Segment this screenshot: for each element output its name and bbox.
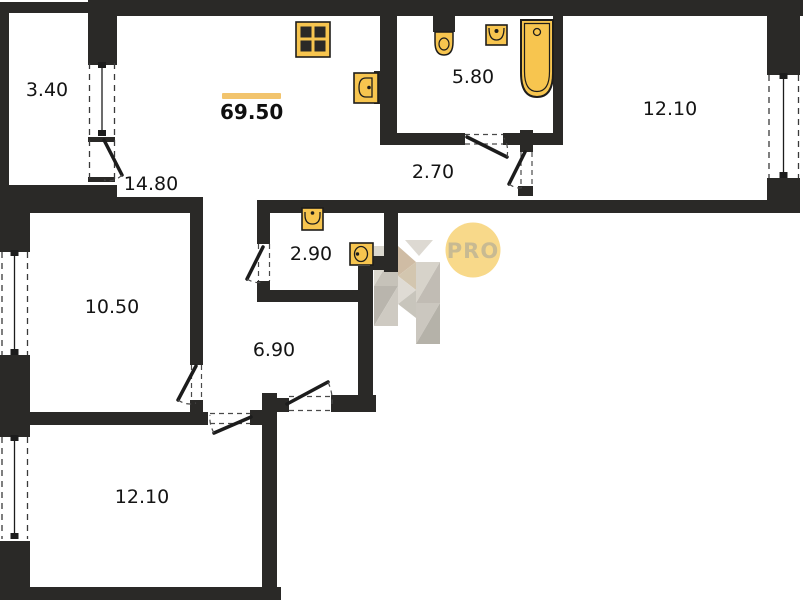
living-kitchen-area-label: 14.80 (122, 173, 180, 195)
bathtub-icon (521, 20, 553, 97)
entry-door (287, 382, 332, 411)
wc-sink-icon (350, 243, 373, 265)
bedroom-left-area-label: 10.50 (83, 296, 141, 318)
bedroom-bottom-area-label: 12.10 (112, 486, 172, 508)
bedroom-right-area-label: 12.10 (640, 98, 700, 120)
toilet-icon (433, 16, 455, 55)
wc-area-label: 2.90 (287, 243, 335, 265)
kitchen-sink-icon (354, 73, 378, 103)
pro-badge: PRO (446, 223, 501, 278)
bathroom-door (465, 135, 508, 158)
bedroom-right-door (509, 152, 532, 188)
bedroom-bottom-door (210, 414, 251, 434)
total-area-label: 69.50 (220, 100, 282, 124)
total-area-accent-line (222, 93, 281, 99)
wc-washbasin-icon (302, 208, 323, 230)
bathroom-area-label: 5.80 (447, 66, 499, 88)
bedroom-bottom-window (2, 435, 28, 539)
stove-icon (296, 22, 330, 57)
balcony-area-label: 3.40 (22, 79, 72, 101)
hallway-area-label: 6.90 (250, 339, 298, 361)
washbasin-icon (486, 25, 507, 45)
hall-upper-area-label: 2.70 (407, 161, 459, 183)
balcony-door (104, 140, 122, 181)
wc-door (247, 244, 270, 283)
bedroom-right-window (769, 73, 799, 178)
bedroom-left-door (178, 365, 202, 404)
floor-plan: PRO 3.40 69.50 14.80 5.80 12.10 2.70 2.9… (0, 0, 803, 600)
bedroom-left-window (2, 250, 28, 355)
balcony-window (90, 62, 115, 183)
pro-badge-text: PRO (447, 239, 499, 263)
